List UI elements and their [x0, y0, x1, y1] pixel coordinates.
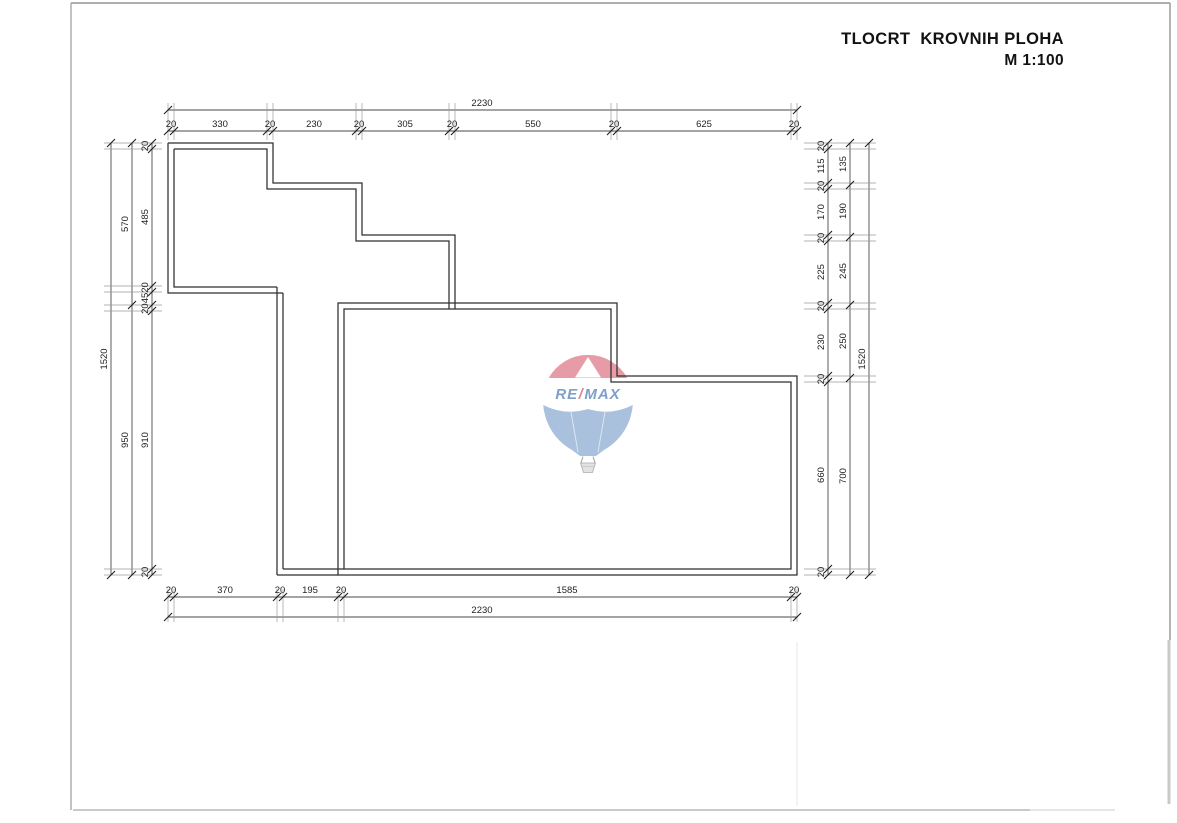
- stepped-wall-outer: [168, 143, 455, 309]
- dim-label: 330: [212, 119, 228, 130]
- dim-label: 20: [609, 119, 620, 130]
- dimension-labels: 2230 20 330 20 230 20 305 20 550 20 625 …: [99, 98, 868, 616]
- dim-label: 20: [789, 585, 800, 596]
- dim-label: 20: [816, 374, 827, 385]
- dim-label: 2230: [471, 98, 492, 109]
- dim-label: 20: [789, 119, 800, 130]
- dim-label: 245: [838, 263, 849, 279]
- dim-label: 570: [120, 216, 131, 232]
- dim-label: 225: [816, 264, 827, 280]
- dim-label: 20: [166, 119, 177, 130]
- remax-balloon-logo: RE/MAX: [543, 355, 633, 473]
- dim-label: 250: [838, 333, 849, 349]
- dim-label: 20: [816, 567, 827, 578]
- dim-label: 20: [816, 141, 827, 152]
- dim-label: 550: [525, 119, 541, 130]
- dim-label: 20: [447, 119, 458, 130]
- dim-label: 660: [816, 467, 827, 483]
- dim-label: 20: [166, 585, 177, 596]
- dim-label: 20: [275, 585, 286, 596]
- dim-label: 230: [306, 119, 322, 130]
- balloon-blue-envelope: [543, 405, 633, 456]
- dim-label: 20: [816, 301, 827, 312]
- dim-label: 2230: [471, 605, 492, 616]
- dim-label: 115: [816, 158, 827, 173]
- left-wall-outer: [168, 143, 283, 293]
- dim-label: 135: [838, 156, 849, 172]
- dim-label: 20: [140, 567, 151, 578]
- dim-label: 20: [816, 233, 827, 244]
- dimension-ticks: [104, 103, 876, 622]
- dim-label: 1520: [99, 348, 110, 369]
- dim-label: 1520: [857, 348, 868, 369]
- dim-label: 370: [217, 585, 233, 596]
- dim-label: 485: [140, 209, 151, 225]
- drawing-scale: M 1:100: [841, 52, 1064, 70]
- dim-label: 625: [696, 119, 712, 130]
- balloon-basket: [581, 463, 596, 473]
- dim-label: 20: [336, 585, 347, 596]
- dim-label: 170: [816, 204, 827, 220]
- stepped-wall-inner: [174, 149, 449, 309]
- dim-label: 700: [838, 468, 849, 484]
- dim-label: 20: [816, 181, 827, 192]
- wordmark-re: RE: [555, 386, 578, 403]
- dim-label: 195: [302, 585, 318, 596]
- remax-wordmark: RE/MAX: [555, 386, 620, 403]
- dim-label: 305: [397, 119, 413, 130]
- dim-label: 230: [816, 334, 827, 350]
- dim-label: 190: [838, 203, 849, 219]
- dimension-lines: [104, 103, 876, 622]
- scanned-roof-plan-page: RE/MAX: [0, 0, 1177, 823]
- dim-label: 910: [140, 432, 151, 448]
- dim-label: 20: [354, 119, 365, 130]
- dim-label: 20: [140, 141, 151, 152]
- title-block: TLOCRT KROVNIH PLOHA M 1:100: [841, 30, 1064, 70]
- dim-label: 204520: [140, 282, 151, 314]
- basket-ropes: [581, 457, 595, 464]
- wordmark-max: MAX: [584, 386, 620, 403]
- dim-label: 20: [265, 119, 276, 130]
- page-edges: [71, 3, 1170, 810]
- dim-label: 1585: [556, 585, 577, 596]
- roof-plan-drawing: RE/MAX: [0, 0, 1177, 823]
- roof-plan-walls: [168, 143, 797, 575]
- drawing-title: TLOCRT KROVNIH PLOHA: [841, 30, 1064, 49]
- left-wall-inner: [174, 149, 277, 287]
- dim-label: 950: [120, 432, 131, 448]
